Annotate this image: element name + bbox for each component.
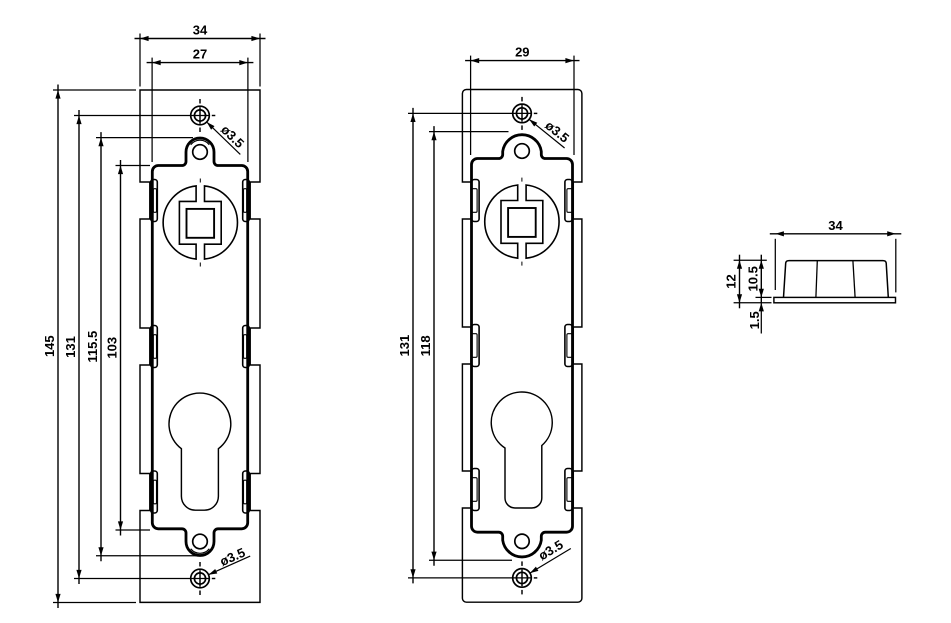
svg-text:103: 103 [105, 337, 120, 359]
svg-text:1.5: 1.5 [747, 311, 762, 329]
svg-text:145: 145 [42, 335, 57, 357]
svg-text:118: 118 [418, 335, 433, 356]
svg-text:27: 27 [193, 47, 207, 62]
svg-text:34: 34 [193, 23, 208, 38]
svg-text:131: 131 [397, 335, 412, 357]
svg-text:10.5: 10.5 [745, 266, 760, 291]
svg-text:12: 12 [724, 274, 739, 288]
svg-text:115.5: 115.5 [85, 331, 100, 363]
svg-text:131: 131 [63, 336, 78, 358]
svg-text:34: 34 [828, 218, 843, 233]
svg-text:29: 29 [515, 45, 529, 60]
